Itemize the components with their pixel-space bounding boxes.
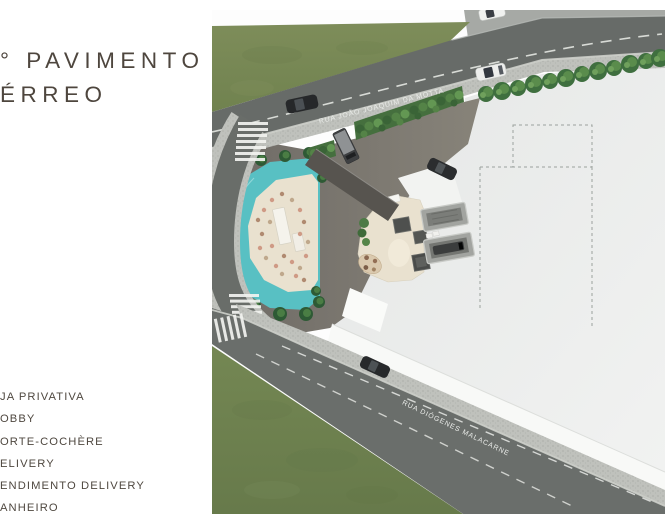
legend-item-atendimento-delivery: ENDIMENTO DELIVERY (0, 475, 145, 497)
site-plan-image: RUA JOÃO JOAQUIM DA MOTTA RUA DIÓGENES M… (212, 10, 665, 514)
legend-item-delivery: ELIVERY (0, 453, 145, 475)
page-title-line2: ÉRREO (0, 78, 205, 112)
page-title: ° PAVIMENTO ÉRREO (0, 44, 205, 112)
legend-item-loja-privativa: JA PRIVATIVA (0, 386, 145, 408)
lobby-rug (388, 239, 410, 267)
legend-item-porte-cochere: ORTE-COCHÈRE (0, 431, 145, 453)
site-plan-svg: RUA JOÃO JOAQUIM DA MOTTA RUA DIÓGENES M… (212, 10, 665, 514)
legend: JA PRIVATIVA OBBY ORTE-COCHÈRE ELIVERY E… (0, 386, 145, 514)
legend-item-banheiro: ANHEIRO (0, 497, 145, 514)
lobby-core-box-1 (393, 217, 411, 234)
page-title-line1: ° PAVIMENTO (0, 44, 205, 78)
page: ° PAVIMENTO ÉRREO JA PRIVATIVA OBBY ORTE… (0, 0, 665, 514)
legend-item-lobby: OBBY (0, 408, 145, 430)
